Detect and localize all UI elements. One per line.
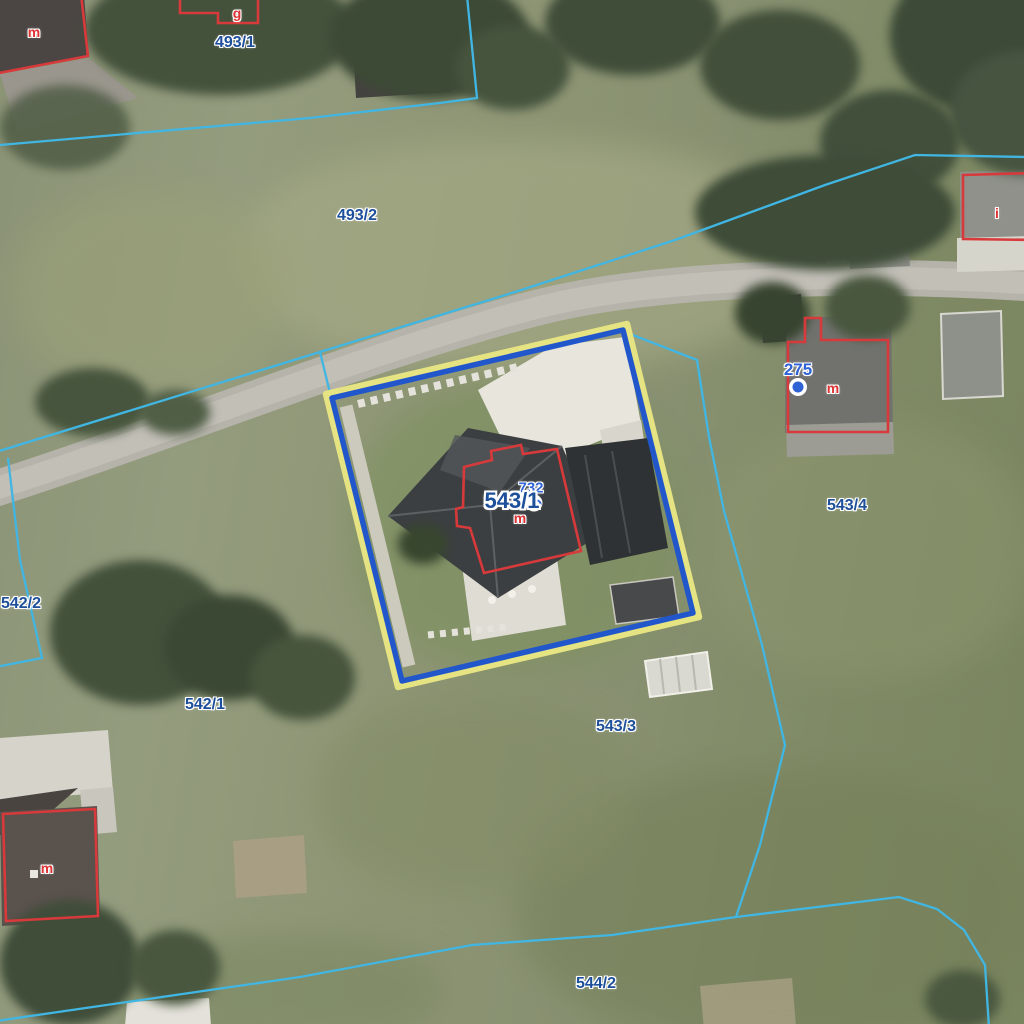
parcel-label-542-2: 542/2 (1, 595, 41, 613)
building-number-275: 275 (784, 360, 812, 380)
parcel-boundary-line (0, 897, 989, 1024)
building-point-275 (793, 382, 804, 393)
parcel-label-544-2: 544/2 (576, 975, 616, 993)
building-letter-m-center: m (514, 510, 526, 526)
building-letter-m-topleft: m (28, 24, 40, 40)
parcel-boundary-line (0, 458, 42, 667)
building-letter-m-bottomleft: m (41, 860, 53, 876)
building-outline-top-left (0, 0, 88, 74)
parcel-label-543-1-selected: 543/1 (484, 488, 539, 514)
building-outline-i (963, 173, 1024, 240)
map-canvas[interactable]: m g 493/1 493/2 i 275 m 732 543/1 m 543/… (0, 0, 1024, 1024)
parcel-label-542-1: 542/1 (185, 696, 225, 714)
parcel-label-543-4: 543/4 (827, 497, 867, 515)
parcel-boundary-line (0, 155, 1024, 452)
parcel-label-493-1: 493/1 (215, 34, 255, 52)
building-letter-g: g (233, 5, 242, 21)
building-letter-m-275: m (827, 380, 839, 396)
parcel-label-543-3: 543/3 (596, 718, 636, 736)
building-letter-i: i (995, 205, 999, 221)
building-outline-g (180, 0, 258, 23)
parcel-label-493-2: 493/2 (337, 207, 377, 225)
